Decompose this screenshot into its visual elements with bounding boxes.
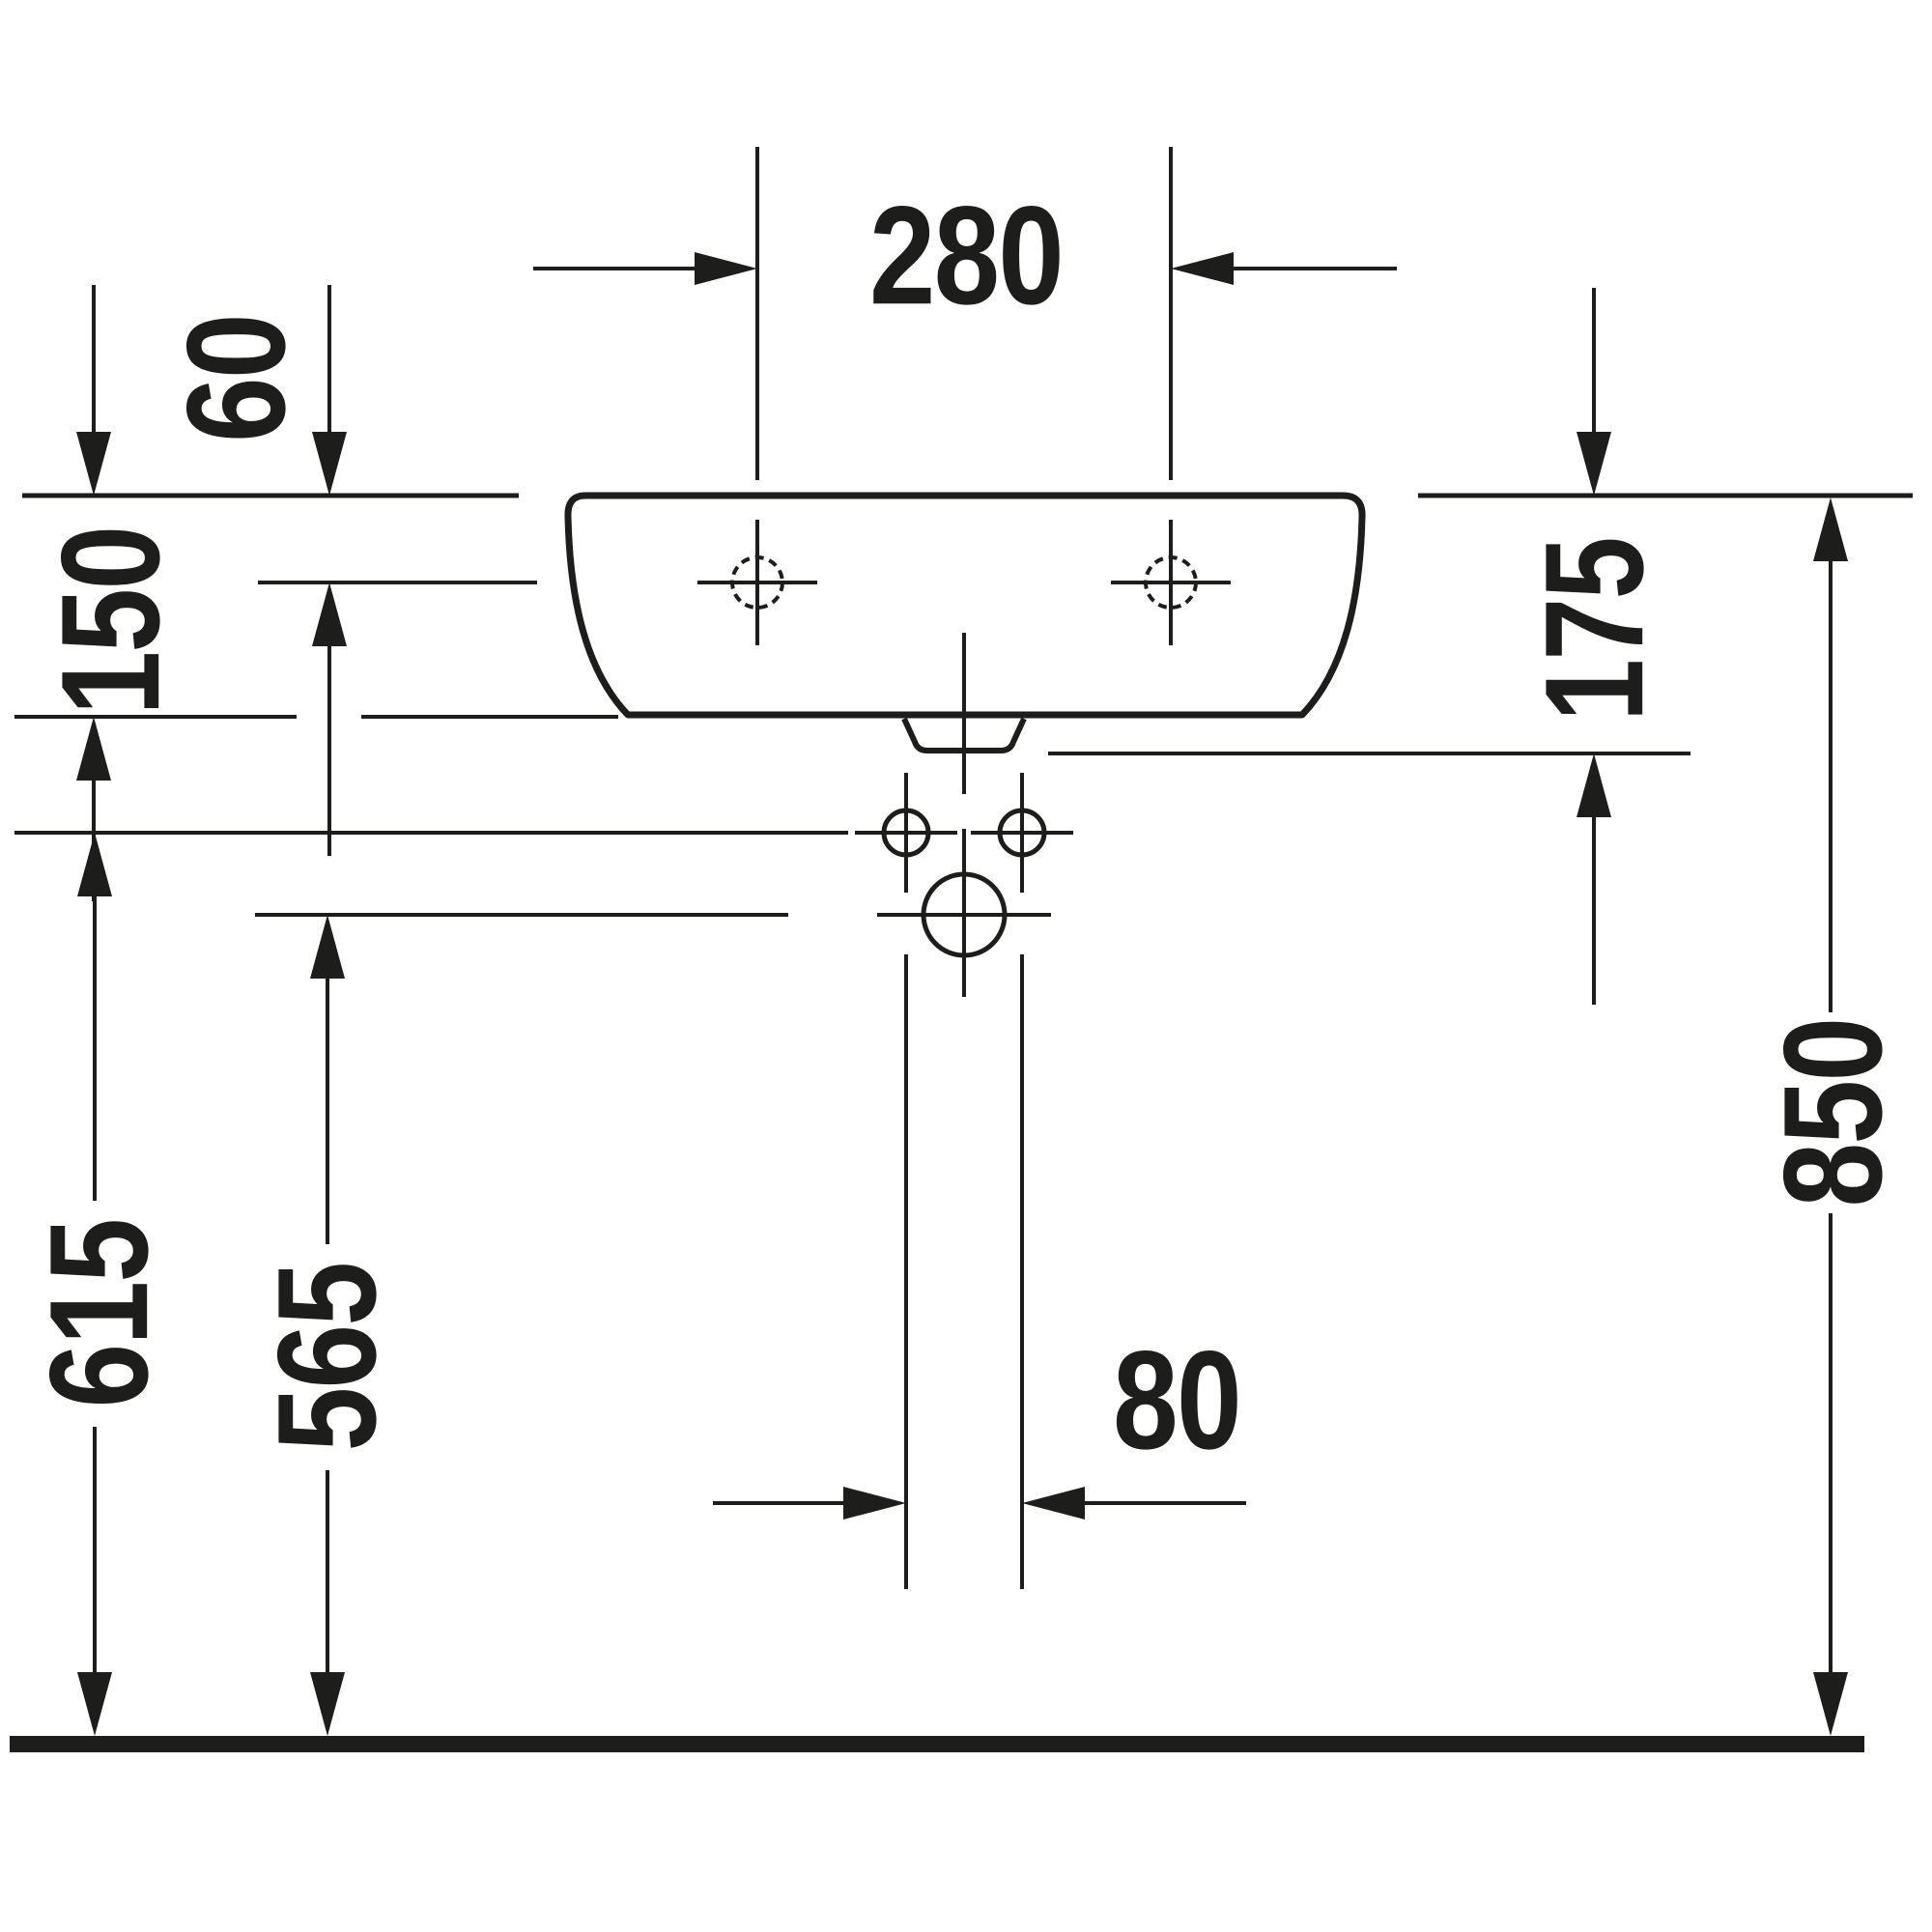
dimension-floor-to-rim: 850 [1754,497,1911,1736]
dim-label-565: 565 [248,1264,405,1452]
drain-pipe-lines [906,954,1022,1589]
dim-label-280: 280 [869,177,1063,333]
dimension-floor-to-fixing-holes: 615 [20,833,177,1736]
dimension-tap-spacing: 280 [533,147,1397,480]
technical-drawing-page: 280 60 150 175 615 565 [0,0,1932,1932]
dim-label-850: 850 [1754,1019,1911,1207]
dim-label-80: 80 [1113,1321,1240,1478]
dim-label-150: 150 [32,527,188,716]
washbasin-dimension-drawing: 280 60 150 175 615 565 [0,0,1932,1932]
dim-label-60: 60 [157,315,314,442]
fixing-hole-left [855,773,957,893]
floor-line [10,1736,1864,1752]
dimension-pipe-spacing: 80 [713,1321,1246,1520]
fixing-hole-right [971,773,1073,893]
dimension-floor-to-drain-center: 565 [248,915,405,1736]
dim-label-175: 175 [1516,538,1672,722]
dimension-rim-to-outlet-bottom: 175 [1516,288,1672,1005]
dim-label-615: 615 [20,1220,177,1408]
